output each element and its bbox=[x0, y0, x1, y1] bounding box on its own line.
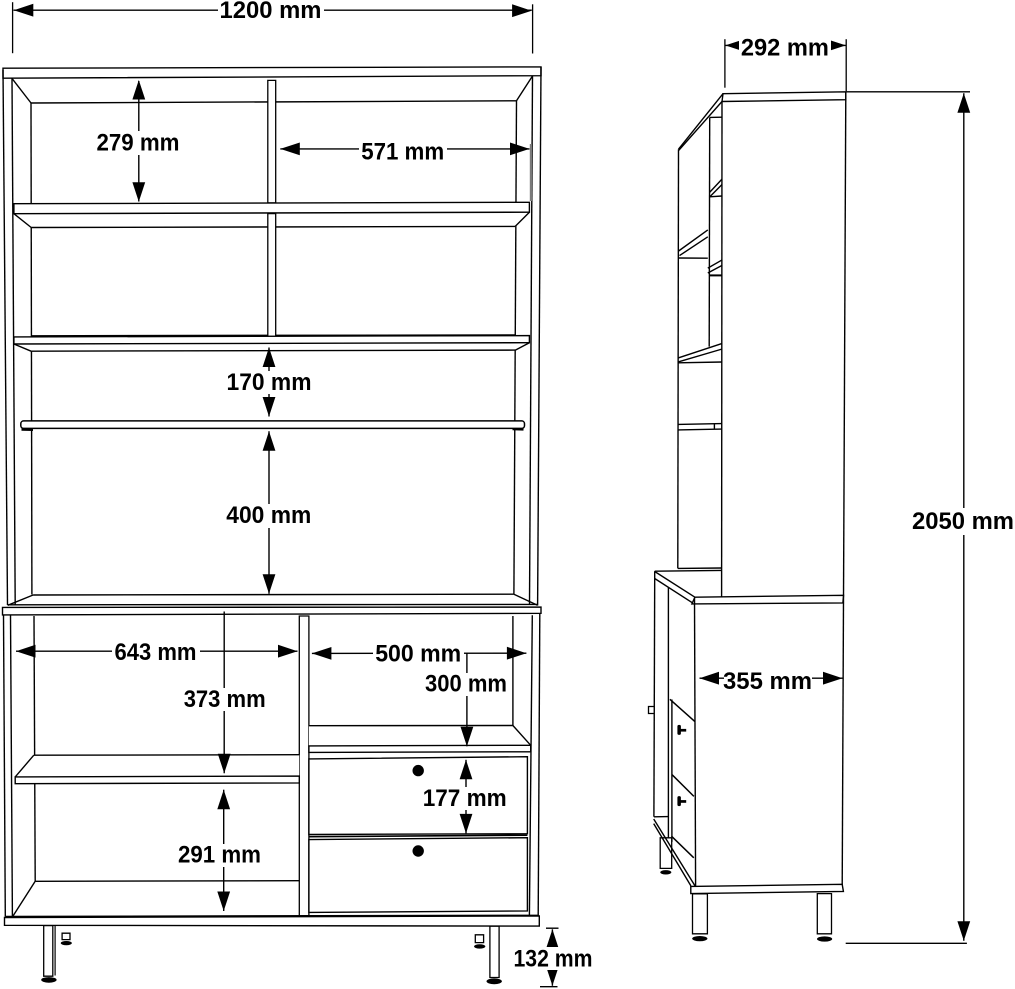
svg-text:279 mm: 279 mm bbox=[97, 129, 180, 156]
svg-text:355 mm: 355 mm bbox=[723, 668, 812, 695]
svg-text:571 mm: 571 mm bbox=[361, 138, 444, 165]
svg-text:170 mm: 170 mm bbox=[227, 369, 312, 396]
svg-text:400 mm: 400 mm bbox=[226, 502, 311, 529]
svg-text:291 mm: 291 mm bbox=[178, 842, 261, 869]
svg-text:292 mm: 292 mm bbox=[741, 34, 829, 61]
svg-text:132 mm: 132 mm bbox=[514, 945, 593, 972]
svg-text:177 mm: 177 mm bbox=[423, 785, 507, 812]
svg-text:300 mm: 300 mm bbox=[425, 671, 507, 698]
svg-text:500 mm: 500 mm bbox=[375, 640, 461, 667]
svg-text:373 mm: 373 mm bbox=[184, 686, 266, 713]
svg-text:1200 mm: 1200 mm bbox=[220, 0, 322, 24]
svg-text:643 mm: 643 mm bbox=[115, 639, 197, 666]
svg-text:2050 mm: 2050 mm bbox=[912, 508, 1014, 535]
